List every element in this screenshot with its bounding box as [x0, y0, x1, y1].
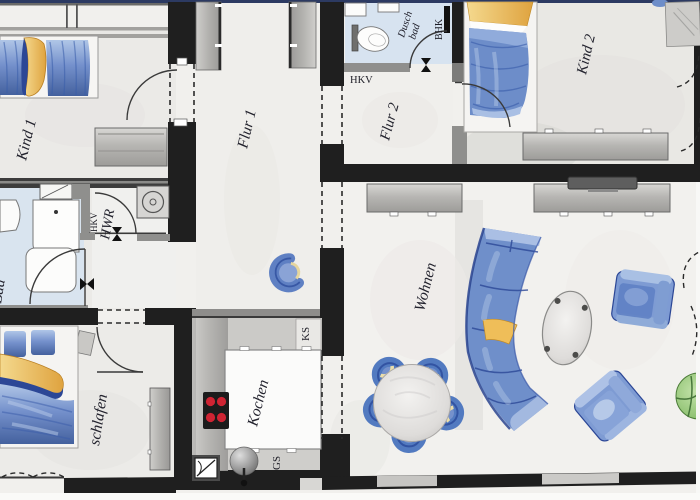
svg-text:KS: KS — [300, 327, 312, 341]
svg-text:HKV: HKV — [89, 212, 99, 232]
svg-text:HKV: HKV — [350, 75, 373, 86]
svg-text:GS: GS — [271, 456, 283, 470]
svg-text:BHK: BHK — [434, 18, 445, 40]
